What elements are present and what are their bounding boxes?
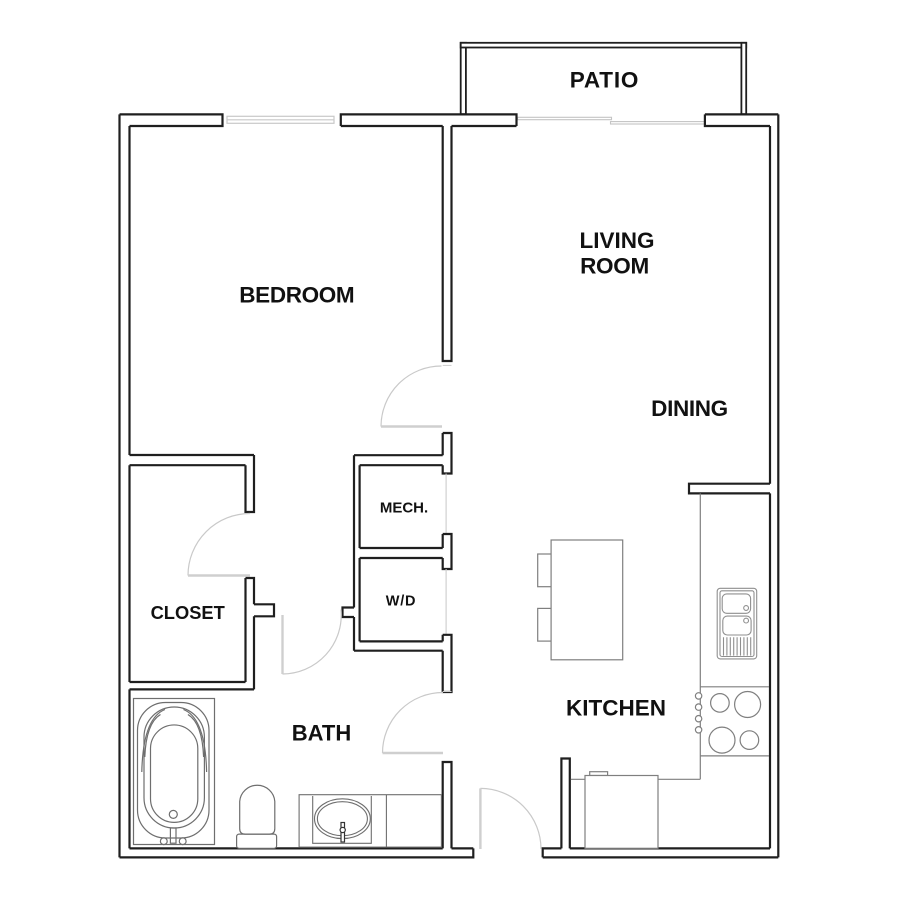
svg-text:BATH: BATH [292,720,351,745]
svg-text:CLOSET: CLOSET [151,602,225,623]
svg-text:W/D: W/D [386,593,417,609]
svg-text:PATIO: PATIO [570,68,639,93]
svg-text:DINING: DINING [651,396,728,421]
svg-text:MECH.: MECH. [380,499,428,516]
svg-text:KITCHEN: KITCHEN [566,696,666,721]
svg-text:ROOM: ROOM [580,253,649,278]
svg-text:LIVING: LIVING [579,228,654,253]
svg-text:BEDROOM: BEDROOM [239,283,354,308]
